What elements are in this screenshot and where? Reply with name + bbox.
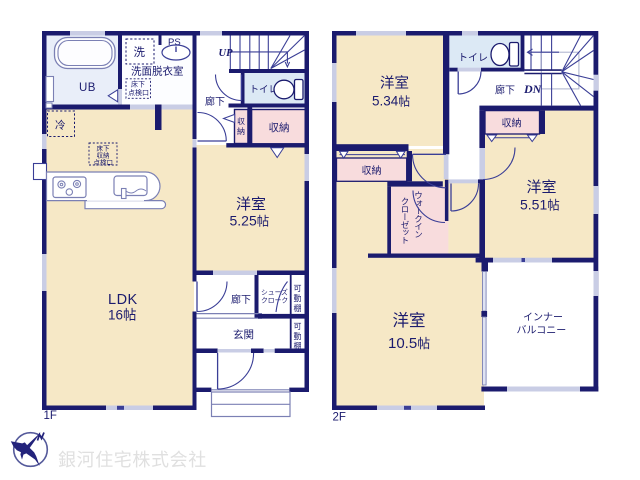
svg-text:玄関: 玄関 (233, 328, 254, 341)
svg-text:16帖: 16帖 (108, 308, 137, 323)
svg-text:DN: DN (523, 82, 543, 96)
svg-text:動: 動 (294, 332, 302, 341)
svg-text:銀河住宅株式会社: 銀河住宅株式会社 (58, 450, 207, 470)
svg-text:LDK: LDK (108, 292, 138, 308)
svg-text:洋室: 洋室 (380, 75, 409, 92)
svg-text:棚: 棚 (294, 303, 302, 313)
svg-text:10.5帖: 10.5帖 (388, 335, 430, 352)
svg-text:可: 可 (294, 322, 302, 331)
svg-text:5.34帖: 5.34帖 (372, 94, 410, 109)
svg-text:2F: 2F (333, 412, 346, 424)
svg-text:シューズ: シューズ (261, 288, 288, 297)
svg-text:点検口: 点検口 (128, 88, 149, 97)
svg-text:洋室: 洋室 (236, 196, 266, 213)
svg-text:ウォークイン: ウォークイン (414, 191, 424, 238)
svg-text:廊下: 廊下 (231, 293, 251, 306)
svg-text:廊下: 廊下 (205, 95, 225, 108)
svg-text:収納: 収納 (97, 151, 110, 160)
svg-text:クローク: クローク (261, 297, 288, 305)
svg-text:トイレ: トイレ (458, 53, 488, 64)
svg-text:バルコニー: バルコニー (517, 325, 567, 337)
svg-text:冷: 冷 (55, 119, 66, 132)
svg-text:収: 収 (237, 116, 245, 126)
svg-text:5.25帖: 5.25帖 (230, 213, 270, 229)
svg-text:クローゼット: クローゼット (400, 197, 410, 244)
svg-text:UB: UB (79, 82, 96, 94)
svg-text:棚: 棚 (294, 341, 302, 351)
svg-text:1F: 1F (44, 410, 57, 422)
svg-text:床下: 床下 (131, 80, 145, 89)
svg-text:インナー: インナー (523, 312, 563, 324)
svg-text:可: 可 (294, 284, 302, 293)
svg-text:廊下: 廊下 (495, 84, 515, 97)
svg-text:UP: UP (219, 48, 234, 59)
svg-text:洗: 洗 (134, 46, 146, 59)
svg-text:納: 納 (237, 126, 245, 136)
svg-text:収納: 収納 (362, 164, 382, 177)
svg-text:洋室: 洋室 (393, 311, 426, 330)
svg-text:洋室: 洋室 (527, 179, 557, 196)
svg-text:点検口: 点検口 (94, 158, 114, 167)
svg-text:床下: 床下 (97, 144, 111, 153)
svg-text:収納: 収納 (502, 117, 522, 130)
svg-text:5.51帖: 5.51帖 (520, 197, 560, 213)
svg-text:洗面脱衣室: 洗面脱衣室 (131, 65, 184, 78)
svg-text:収納: 収納 (269, 121, 290, 134)
svg-text:動: 動 (294, 294, 302, 303)
